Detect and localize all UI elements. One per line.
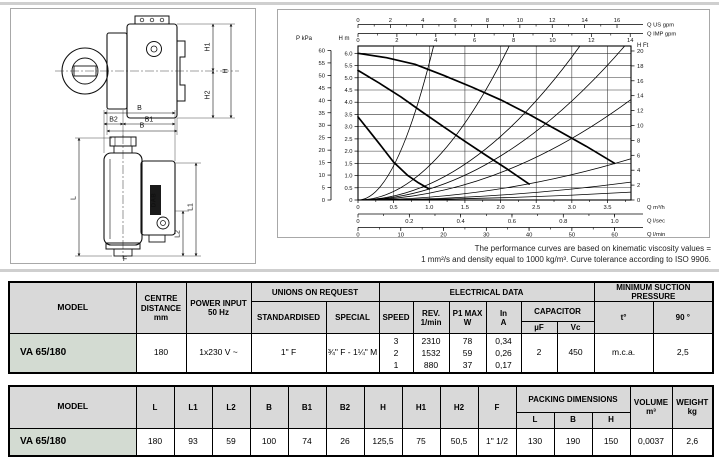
header-packing: PACKING DIMENSIONS — [516, 386, 630, 412]
svg-text:0: 0 — [637, 198, 640, 204]
svg-text:4: 4 — [421, 18, 425, 24]
svg-text:5: 5 — [322, 186, 325, 192]
svg-text:2: 2 — [389, 18, 392, 24]
spec-data-row: VA 65/180 180 1x230 V ~ 1" F ¾" F - 1¼" … — [9, 334, 713, 373]
header-p1-max: P1 MAXW — [449, 302, 486, 334]
section-divider — [0, 269, 719, 272]
svg-text:12: 12 — [549, 18, 555, 24]
l1-value: 93 — [174, 428, 212, 456]
performance-chart-panel: 00.51.01.52.02.53.03.54.04.55.05.56.0H m… — [277, 9, 710, 238]
svg-text:1.0: 1.0 — [611, 219, 619, 225]
spec-header-row-1: MODEL CENTRE DISTANCEmm POWER INPUT50 Hz… — [9, 282, 713, 302]
svg-text:10: 10 — [319, 173, 325, 179]
header-model-dims: MODEL — [9, 386, 136, 428]
svg-text:0: 0 — [356, 205, 359, 211]
h2-value: 50,5 — [440, 428, 478, 456]
power-input-value: 1x230 V ~ — [186, 334, 251, 373]
dim-data-row: VA 65/180 180 93 59 100 74 26 125,5 75 5… — [9, 428, 713, 456]
svg-text:0: 0 — [322, 198, 325, 204]
chart-note-line1: The performance curves are based on kine… — [291, 243, 711, 254]
svg-text:30: 30 — [319, 123, 325, 129]
svg-text:5.5: 5.5 — [344, 64, 352, 70]
svg-text:6: 6 — [637, 153, 640, 159]
svg-text:2: 2 — [395, 38, 398, 44]
dim-label-h2: H2 — [205, 90, 212, 99]
svg-text:Q l/sec: Q l/sec — [647, 219, 665, 225]
svg-text:4.5: 4.5 — [344, 88, 352, 94]
header-weight: WEIGHTkg — [672, 386, 713, 428]
p1-values: 78 59 37 — [449, 334, 486, 373]
pump-dimension-drawing: H1 H2 H B DAB L B B2 — [11, 9, 255, 263]
header-t: t° — [594, 302, 653, 334]
svg-text:4: 4 — [434, 38, 438, 44]
svg-text:1.5: 1.5 — [461, 205, 469, 211]
dim-label-f: F — [123, 256, 127, 263]
svg-text:35: 35 — [319, 111, 325, 117]
svg-text:0.8: 0.8 — [559, 219, 567, 225]
svg-text:15: 15 — [319, 161, 325, 167]
h1-value: 75 — [402, 428, 440, 456]
svg-text:0.5: 0.5 — [344, 186, 352, 192]
svg-text:8: 8 — [512, 38, 515, 44]
rev-values: 2310 1532 880 — [413, 334, 449, 373]
svg-text:12: 12 — [588, 38, 594, 44]
dim-label-l: L — [71, 196, 78, 200]
svg-text:1.0: 1.0 — [344, 174, 352, 180]
pack-l-value: 130 — [516, 428, 554, 456]
vc-value: 450 — [557, 334, 594, 373]
dim-label-b-side: B — [137, 105, 142, 112]
pack-b-value: 190 — [554, 428, 592, 456]
svg-text:H Ft: H Ft — [637, 43, 649, 49]
svg-text:50: 50 — [569, 233, 575, 238]
svg-text:6: 6 — [454, 18, 457, 24]
svg-text:14: 14 — [637, 94, 644, 100]
header-unions: UNIONS ON REQUEST — [251, 282, 379, 302]
l-value: 180 — [136, 428, 174, 456]
svg-text:0.6: 0.6 — [508, 219, 516, 225]
header-volume: VOLUMEm³ — [630, 386, 672, 428]
svg-text:55: 55 — [319, 61, 325, 67]
svg-text:Q l/min: Q l/min — [647, 232, 665, 237]
header-special: SPECIAL — [326, 302, 379, 334]
header-l1: L1 — [174, 386, 212, 428]
in-values: 0,34 0,26 0,17 — [486, 334, 521, 373]
svg-text:2.5: 2.5 — [532, 205, 540, 211]
svg-text:2.5: 2.5 — [344, 137, 352, 143]
svg-text:Q IMP gpm: Q IMP gpm — [647, 32, 676, 38]
l2-value: 59 — [212, 428, 250, 456]
svg-text:0: 0 — [356, 18, 359, 24]
svg-text:5.0: 5.0 — [344, 76, 352, 82]
header-b1: B1 — [288, 386, 326, 428]
svg-text:Q US gpm: Q US gpm — [647, 23, 674, 29]
header-standardised: STANDARDISED — [251, 302, 326, 334]
header-h: H — [364, 386, 402, 428]
chart-note-line2: 1 mm²/s and density equal to 1000 kg/m³.… — [291, 254, 711, 265]
header-uf: µF — [521, 322, 557, 334]
svg-text:3.0: 3.0 — [568, 205, 576, 211]
model-name: VA 65/180 — [9, 334, 136, 373]
pump-drawings-panel: H1 H2 H B DAB L B B2 — [10, 8, 256, 264]
dim-header-row-1: MODEL L L1 L2 B B1 B2 H H1 H2 F PACKING … — [9, 386, 713, 412]
svg-text:14: 14 — [581, 18, 588, 24]
svg-text:10: 10 — [549, 38, 555, 44]
header-pack-b: B — [554, 412, 592, 428]
90-value: 2,5 — [653, 334, 713, 373]
svg-text:0: 0 — [356, 233, 359, 238]
header-capacitor: CAPACITOR — [521, 302, 594, 322]
svg-text:4.0: 4.0 — [344, 100, 352, 106]
header-pack-h: H — [592, 412, 630, 428]
svg-text:40: 40 — [319, 98, 325, 104]
svg-text:3.5: 3.5 — [603, 205, 611, 211]
svg-text:18: 18 — [637, 64, 643, 70]
svg-text:16: 16 — [637, 79, 643, 85]
header-vc: Vc — [557, 322, 594, 334]
header-l: L — [136, 386, 174, 428]
dim-label-b2: B2 — [109, 117, 118, 124]
header-b2: B2 — [326, 386, 364, 428]
svg-text:3.5: 3.5 — [344, 112, 352, 118]
header-h2: H2 — [440, 386, 478, 428]
header-h1: H1 — [402, 386, 440, 428]
dim-label-b-top: B — [140, 123, 145, 130]
svg-text:1.5: 1.5 — [344, 161, 352, 167]
svg-text:3.0: 3.0 — [344, 125, 352, 131]
chart-note: The performance curves are based on kine… — [291, 243, 711, 265]
svg-text:2: 2 — [637, 183, 640, 189]
svg-text:H m: H m — [339, 36, 350, 42]
svg-text:P kPa: P kPa — [296, 36, 313, 42]
pack-h-value: 150 — [592, 428, 630, 456]
header-speed: SPEED — [379, 302, 413, 334]
header-min-suction: MINIMUM SUCTION PRESSURE — [594, 282, 713, 302]
speed-selector-knob — [147, 42, 162, 57]
svg-text:60: 60 — [611, 233, 617, 238]
svg-text:0: 0 — [349, 198, 352, 204]
svg-text:30: 30 — [483, 233, 489, 238]
header-90: 90 ° — [653, 302, 713, 334]
svg-text:50: 50 — [319, 73, 325, 79]
dim-label-h1: H1 — [205, 42, 212, 51]
svg-text:0.5: 0.5 — [390, 205, 398, 211]
svg-text:0: 0 — [356, 219, 359, 225]
svg-text:4: 4 — [637, 168, 641, 174]
svg-text:2.0: 2.0 — [497, 205, 505, 211]
svg-text:45: 45 — [319, 86, 325, 92]
header-electrical-data: ELECTRICAL DATA — [379, 282, 594, 302]
volume-value: 0,0037 — [630, 428, 672, 456]
svg-text:16: 16 — [614, 18, 620, 24]
svg-text:0: 0 — [356, 38, 359, 44]
specifications-table: MODEL CENTRE DISTANCEmm POWER INPUT50 Hz… — [8, 281, 714, 374]
dab-logo: DAB — [152, 193, 158, 208]
dimensions-table: MODEL L L1 L2 B B1 B2 H H1 H2 F PACKING … — [8, 385, 714, 457]
svg-text:10: 10 — [637, 123, 643, 129]
header-model: MODEL — [9, 282, 136, 334]
dim-label-l2: L2 — [175, 230, 182, 238]
model-name-dims: VA 65/180 — [9, 428, 136, 456]
uf-value: 2 — [521, 334, 557, 373]
svg-text:6.0: 6.0 — [344, 51, 352, 57]
svg-text:20: 20 — [440, 233, 446, 238]
centre-distance-value: 180 — [136, 334, 186, 373]
b-value: 100 — [250, 428, 288, 456]
header-pack-l: L — [516, 412, 554, 428]
header-in: InA — [486, 302, 521, 334]
svg-text:1.0: 1.0 — [425, 205, 433, 211]
header-f: F — [478, 386, 516, 428]
dim-label-l1: L1 — [188, 203, 195, 211]
header-centre-distance: CENTRE DISTANCEmm — [136, 282, 186, 334]
svg-text:Q m³/h: Q m³/h — [647, 205, 665, 211]
svg-text:20: 20 — [637, 49, 643, 55]
capacitor-box — [149, 235, 165, 242]
svg-text:2.0: 2.0 — [344, 149, 352, 155]
svg-text:60: 60 — [319, 48, 325, 54]
dim-label-b1: B1 — [145, 117, 154, 124]
weight-value: 2,6 — [672, 428, 713, 456]
svg-text:0.4: 0.4 — [457, 219, 466, 225]
svg-text:8: 8 — [637, 138, 640, 144]
svg-text:10: 10 — [398, 233, 404, 238]
header-l2: L2 — [212, 386, 250, 428]
header-power-input: POWER INPUT50 Hz — [186, 282, 251, 334]
page-top-divider — [0, 2, 719, 5]
speed-knob-side — [157, 217, 169, 229]
svg-text:14: 14 — [627, 38, 634, 44]
performance-chart-svg: 00.51.01.52.02.53.03.54.04.55.05.56.0H m… — [278, 10, 709, 237]
svg-text:25: 25 — [319, 136, 325, 142]
svg-text:20: 20 — [319, 148, 325, 154]
svg-text:0.2: 0.2 — [405, 219, 413, 225]
b1-value: 74 — [288, 428, 326, 456]
svg-text:40: 40 — [526, 233, 532, 238]
svg-text:10: 10 — [517, 18, 523, 24]
t-value: m.c.a. — [594, 334, 653, 373]
svg-text:12: 12 — [637, 109, 643, 115]
h-value: 125,5 — [364, 428, 402, 456]
svg-text:8: 8 — [486, 18, 489, 24]
dim-label-h: H — [223, 68, 230, 73]
b2-value: 26 — [326, 428, 364, 456]
speed-values: 3 2 1 — [379, 334, 413, 373]
special-value: ¾" F - 1¼" M — [326, 334, 379, 373]
header-b: B — [250, 386, 288, 428]
svg-text:6: 6 — [473, 38, 476, 44]
standardised-value: 1" F — [251, 334, 326, 373]
f-value: 1" 1/2 — [478, 428, 516, 456]
header-rev: REV.1/min — [413, 302, 449, 334]
